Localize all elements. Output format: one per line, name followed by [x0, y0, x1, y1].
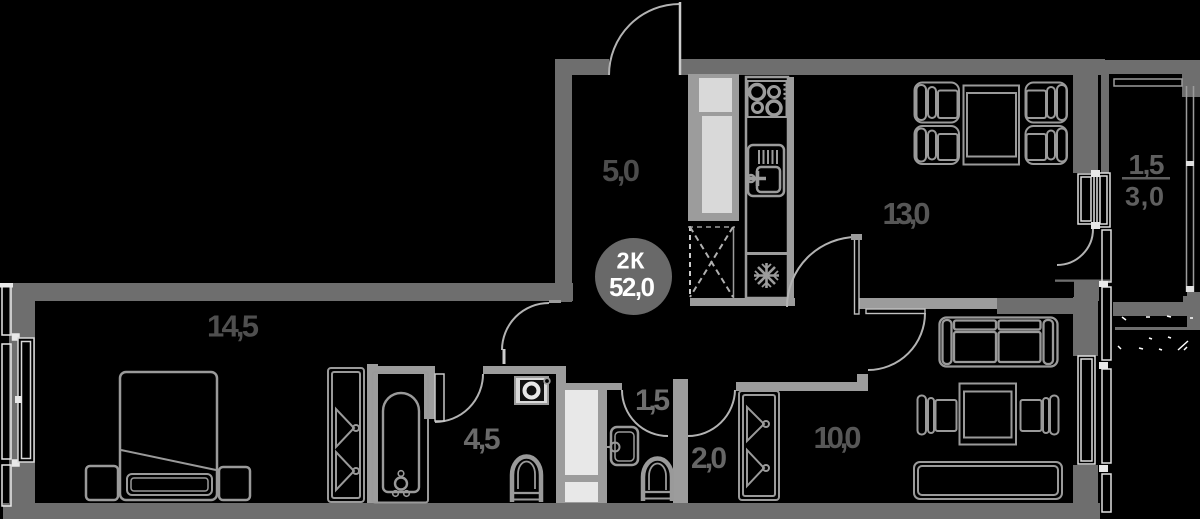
svg-text:1,5: 1,5 [1129, 149, 1165, 180]
svg-text:3,0: 3,0 [1125, 182, 1164, 212]
svg-text:10,0: 10,0 [814, 420, 862, 455]
svg-text:2К: 2К [617, 248, 646, 274]
svg-text:1,5: 1,5 [635, 384, 670, 417]
svg-text:4,5: 4,5 [464, 423, 501, 456]
svg-text:52,0: 52,0 [609, 272, 655, 302]
svg-text:14,5: 14,5 [207, 309, 259, 344]
svg-text:13,0: 13,0 [883, 196, 931, 231]
svg-text:2,0: 2,0 [691, 442, 727, 475]
svg-text:5,0: 5,0 [602, 153, 640, 188]
